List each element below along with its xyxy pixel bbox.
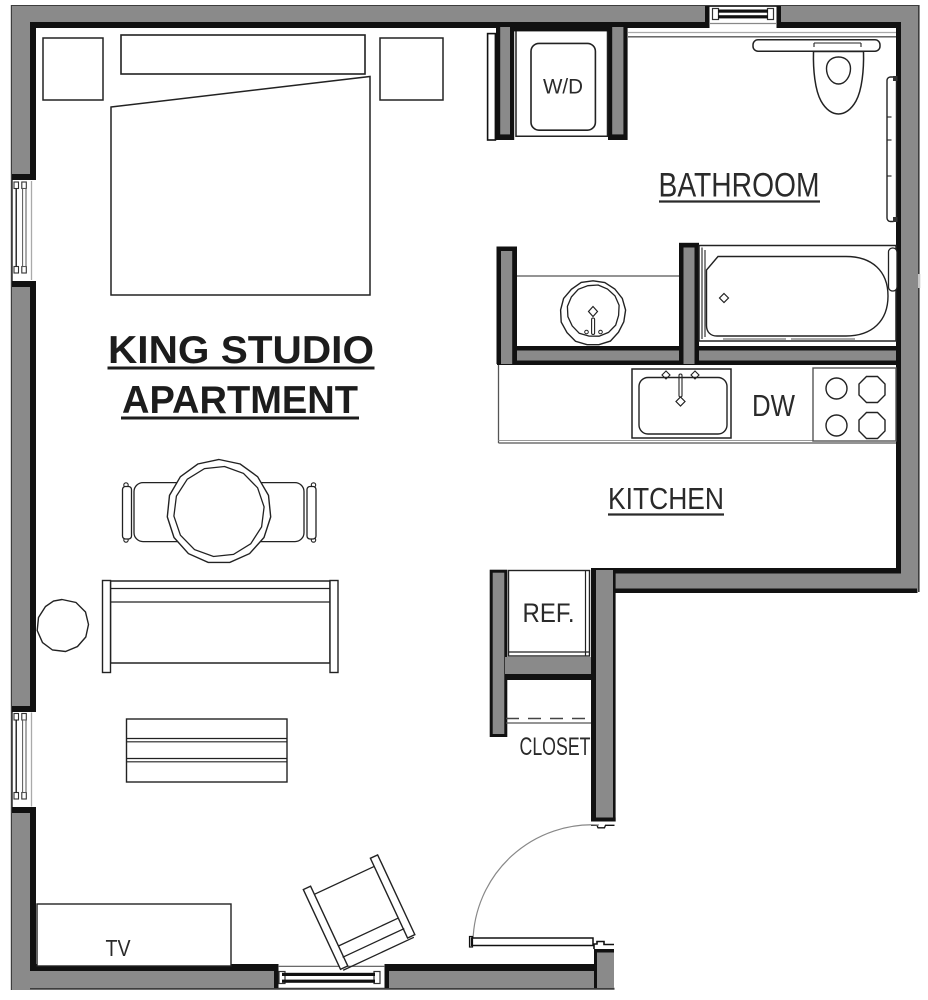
svg-text:KITCHEN: KITCHEN (608, 482, 724, 516)
svg-text:APARTMENT: APARTMENT (122, 379, 358, 422)
svg-text:REF.: REF. (523, 598, 575, 628)
svg-text:W/D: W/D (543, 76, 583, 99)
svg-text:CLOSET: CLOSET (520, 733, 591, 761)
svg-text:DW: DW (752, 388, 796, 423)
svg-text:KING STUDIO: KING STUDIO (108, 329, 374, 372)
svg-text:TV: TV (106, 935, 132, 961)
svg-text:BATHROOM: BATHROOM (659, 167, 820, 205)
